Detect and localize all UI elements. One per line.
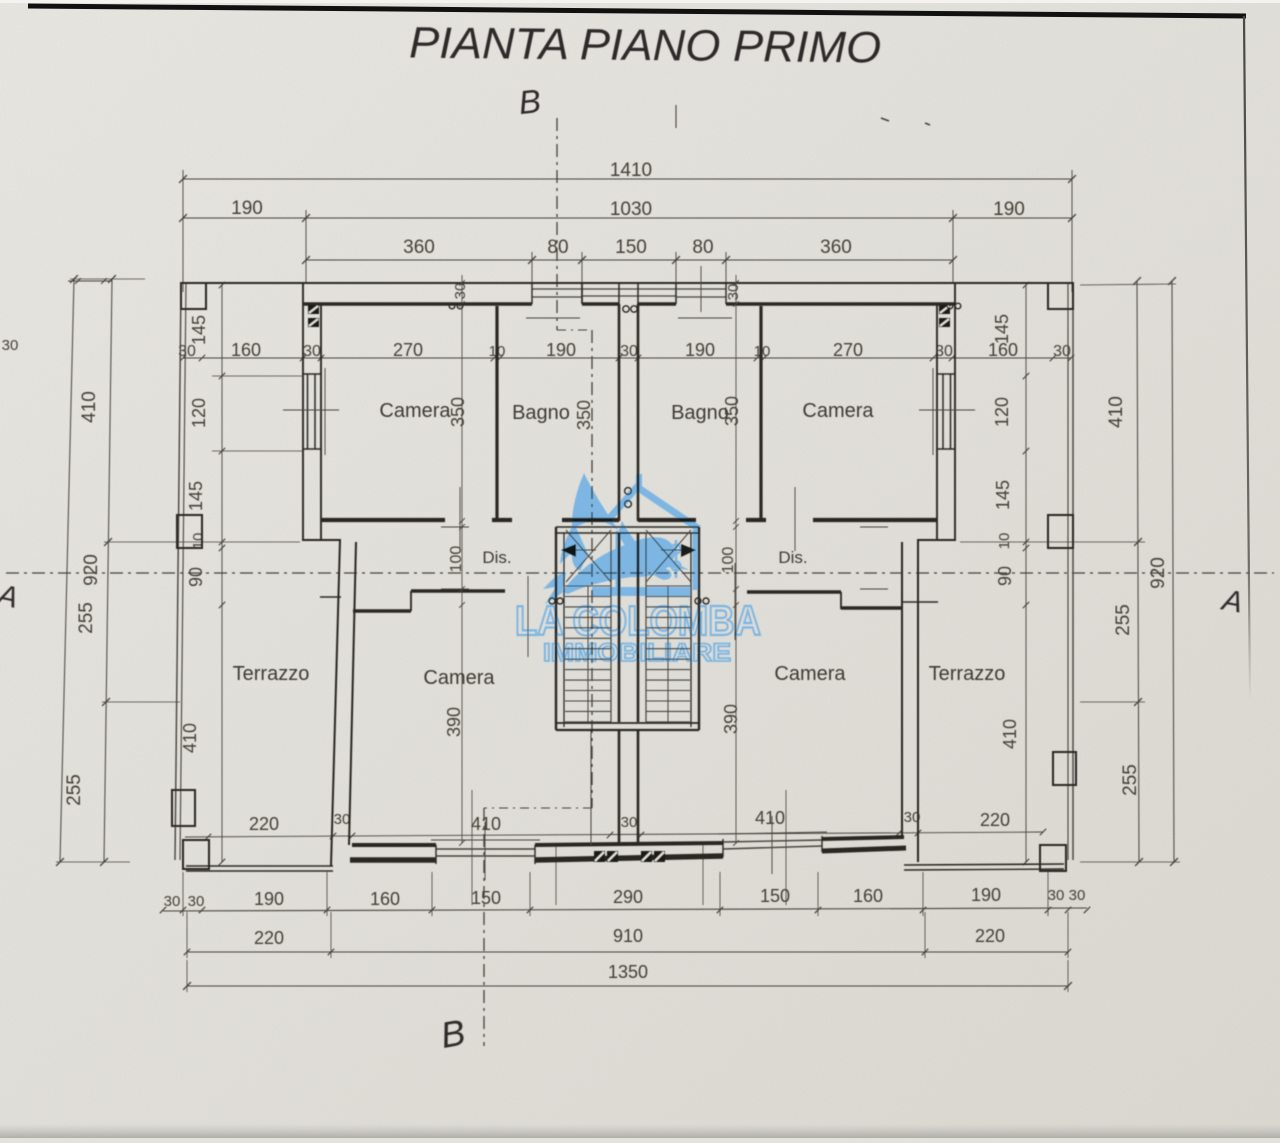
- svg-text:Bagno: Bagno: [512, 402, 570, 424]
- svg-text:30: 30: [303, 343, 321, 360]
- svg-text:220: 220: [975, 926, 1005, 946]
- svg-text:Bagno: Bagno: [671, 402, 729, 424]
- svg-text:270: 270: [833, 340, 863, 360]
- svg-text:350: 350: [448, 397, 468, 427]
- svg-text:255: 255: [1120, 764, 1141, 796]
- svg-text:B: B: [517, 82, 543, 121]
- svg-text:255: 255: [64, 774, 85, 806]
- svg-text:Terrazzo: Terrazzo: [233, 663, 310, 685]
- svg-text:30: 30: [188, 893, 205, 910]
- svg-text:100: 100: [720, 547, 737, 574]
- svg-text:410: 410: [471, 814, 501, 834]
- svg-text:410: 410: [1000, 719, 1020, 749]
- svg-text:90: 90: [995, 566, 1015, 586]
- svg-text:120: 120: [189, 398, 209, 428]
- svg-text:410: 410: [755, 808, 785, 828]
- svg-text:390: 390: [444, 707, 464, 737]
- svg-text:IMMOBILIARE: IMMOBILIARE: [543, 639, 731, 667]
- svg-text:220: 220: [980, 810, 1010, 830]
- svg-text:30: 30: [452, 283, 469, 300]
- svg-text:220: 220: [254, 928, 284, 948]
- svg-text:410: 410: [180, 723, 200, 753]
- svg-text:920: 920: [81, 554, 102, 586]
- svg-text:390: 390: [721, 704, 741, 734]
- svg-text:160: 160: [853, 886, 883, 906]
- svg-text:30: 30: [725, 284, 742, 301]
- svg-text:80: 80: [547, 237, 568, 258]
- svg-text:10: 10: [190, 533, 207, 550]
- svg-text:145: 145: [993, 480, 1013, 510]
- svg-text:30: 30: [164, 893, 181, 910]
- svg-text:920: 920: [1148, 557, 1169, 589]
- svg-text:160: 160: [988, 340, 1018, 360]
- svg-text:PIANTA PIANO PRIMO: PIANTA PIANO PRIMO: [409, 19, 881, 73]
- svg-text:350: 350: [574, 400, 594, 430]
- svg-text:1030: 1030: [610, 199, 652, 220]
- svg-text:Dis.: Dis.: [778, 548, 807, 567]
- svg-text:360: 360: [403, 237, 435, 258]
- svg-text:190: 190: [993, 199, 1025, 220]
- svg-text:190: 190: [231, 198, 263, 219]
- svg-text:30: 30: [1048, 887, 1065, 904]
- svg-text:160: 160: [370, 889, 400, 909]
- svg-text:410: 410: [79, 391, 100, 423]
- svg-text:190: 190: [685, 340, 715, 360]
- svg-text:Camera: Camera: [379, 400, 451, 422]
- svg-text:100: 100: [448, 546, 465, 573]
- svg-text:360: 360: [820, 237, 852, 258]
- svg-text:Terrazzo: Terrazzo: [929, 663, 1006, 685]
- svg-text:145: 145: [189, 315, 209, 345]
- svg-text:Camera: Camera: [423, 667, 495, 689]
- svg-text:190: 190: [254, 889, 284, 909]
- svg-text:Camera: Camera: [774, 663, 846, 685]
- svg-text:410: 410: [1106, 396, 1127, 428]
- svg-text:150: 150: [615, 237, 647, 258]
- svg-text:Camera: Camera: [802, 400, 874, 422]
- svg-text:255: 255: [76, 602, 97, 634]
- svg-text:120: 120: [992, 397, 1012, 427]
- svg-text:160: 160: [231, 340, 261, 360]
- svg-text:LA COLOMBA: LA COLOMBA: [515, 597, 761, 644]
- svg-text:290: 290: [613, 887, 643, 907]
- svg-text:270: 270: [393, 340, 423, 360]
- svg-text:190: 190: [546, 340, 576, 360]
- svg-text:30: 30: [1069, 887, 1086, 904]
- svg-text:910: 910: [613, 926, 643, 946]
- svg-text:80: 80: [692, 237, 713, 258]
- svg-text:145: 145: [186, 481, 206, 511]
- svg-text:30: 30: [2, 337, 19, 354]
- svg-text:Dis.: Dis.: [482, 548, 511, 567]
- svg-text:10: 10: [996, 533, 1013, 550]
- svg-text:1350: 1350: [608, 962, 648, 982]
- svg-text:30: 30: [620, 343, 638, 360]
- svg-text:150: 150: [471, 888, 501, 908]
- svg-text:255: 255: [1113, 604, 1134, 636]
- svg-text:30: 30: [334, 811, 351, 828]
- svg-text:30: 30: [621, 814, 638, 831]
- svg-text:90: 90: [186, 567, 206, 587]
- svg-text:150: 150: [760, 886, 790, 906]
- svg-text:1410: 1410: [610, 160, 652, 181]
- svg-text:190: 190: [971, 885, 1001, 905]
- svg-text:220: 220: [249, 814, 279, 834]
